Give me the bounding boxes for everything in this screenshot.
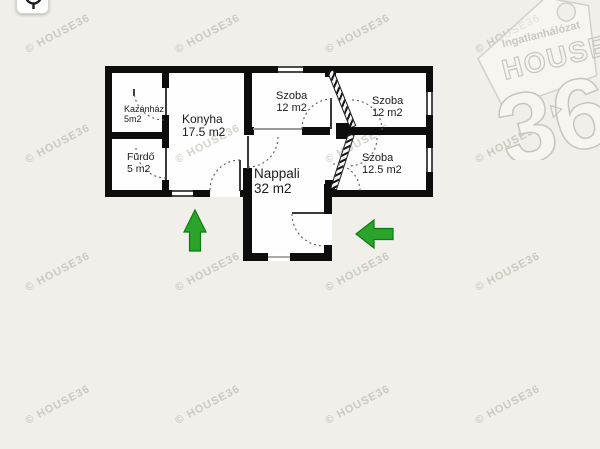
window-right-lower — [426, 148, 433, 172]
door-leaf-entrance-nappali — [292, 212, 324, 214]
room-name: Szoba — [276, 90, 307, 102]
wall-nappali-szoba-b — [302, 127, 330, 135]
wall-extension-bottom-a — [243, 253, 268, 261]
wall-szoba-szoba-right — [350, 127, 433, 135]
room-area: 5 m2 — [127, 164, 154, 176]
wall-extension-right-b — [324, 245, 332, 261]
door-leaf-kazanhaz — [165, 88, 167, 115]
room-name: Konyha — [182, 113, 225, 126]
room-area: 12 m2 — [372, 107, 403, 119]
room-label-furdo: Fürdő 5 m2 — [127, 152, 154, 176]
door-leaf-entrance-konyha — [239, 160, 241, 191]
room-area: 32 m2 — [254, 181, 300, 196]
room-label-szoba-top-right: Szoba 12 m2 — [372, 95, 403, 120]
watermark: © HOUSE36 — [473, 250, 542, 294]
watermark: © HOUSE36 — [473, 383, 542, 427]
room-label-nappali: Nappali 32 m2 — [254, 166, 300, 196]
window-right-upper — [426, 92, 433, 115]
window-extension-bottom — [268, 253, 290, 261]
room-label-szoba-top-middle: Szoba 12 m2 — [276, 90, 307, 115]
watermark: © HOUSE36 — [173, 250, 242, 294]
door-tick-kazanhaz — [133, 89, 135, 96]
room-area: 12 m2 — [276, 102, 307, 114]
room-label-konyha: Konyha 17.5 m2 — [182, 113, 225, 140]
watermark: © HOUSE36 — [173, 12, 242, 56]
room-area: 12.5 m2 — [362, 164, 402, 176]
watermark: © HOUSE36 — [23, 250, 92, 294]
house36-logo: Ingatlanhálózat HOUSE 36 — [465, 0, 600, 160]
door-leaf-konyha-nappali — [247, 136, 249, 169]
wall-furdo-konyha — [162, 180, 169, 197]
watermark: © HOUSE36 — [323, 12, 392, 56]
window-top — [278, 66, 303, 73]
room-name: Kazánház — [124, 104, 164, 114]
room-label-kazanhaz: Kazánház 5m2 — [124, 104, 164, 124]
zoom-button[interactable] — [16, 0, 49, 14]
wall-kazanhaz-konyha-a — [162, 66, 169, 88]
room-name: Nappali — [254, 166, 300, 181]
room-area: 17.5 m2 — [182, 126, 225, 139]
magnifier-pin-icon — [17, 0, 50, 15]
watermark: © HOUSE36 — [323, 383, 392, 427]
room-label-szoba-right: Szoba 12.5 m2 — [362, 152, 402, 177]
window-bottom-left — [172, 190, 193, 197]
watermark: © HOUSE36 — [23, 12, 92, 56]
wall-konyha-szoba — [244, 66, 252, 128]
up-arrow-icon — [184, 210, 206, 251]
room-name: Fürdő — [127, 152, 154, 164]
left-arrow-icon — [356, 220, 393, 248]
watermark: © HOUSE36 — [23, 383, 92, 427]
wall-top — [105, 66, 433, 73]
watermark: © HOUSE36 — [23, 122, 92, 166]
wall-bottom-left2 — [193, 190, 210, 197]
room-name: Szoba — [372, 95, 403, 107]
watermark: © HOUSE36 — [323, 250, 392, 294]
room-area: 5m2 — [124, 114, 164, 124]
wall-bottom-right — [332, 190, 433, 197]
partition-line-nappali-szoba — [253, 128, 302, 130]
wall-extension-left — [243, 168, 252, 261]
watermark: © HOUSE36 — [173, 383, 242, 427]
floorplan-image: © HOUSE36 © HOUSE36 © HOUSE36 © HOUSE36 … — [0, 0, 600, 449]
door-leaf-furdo — [165, 148, 167, 180]
floor-nappali-extension — [243, 188, 332, 261]
wall-kazanhaz-furdo — [105, 132, 162, 139]
door-leaf-szoba — [330, 98, 332, 129]
room-name: Szoba — [362, 152, 402, 164]
